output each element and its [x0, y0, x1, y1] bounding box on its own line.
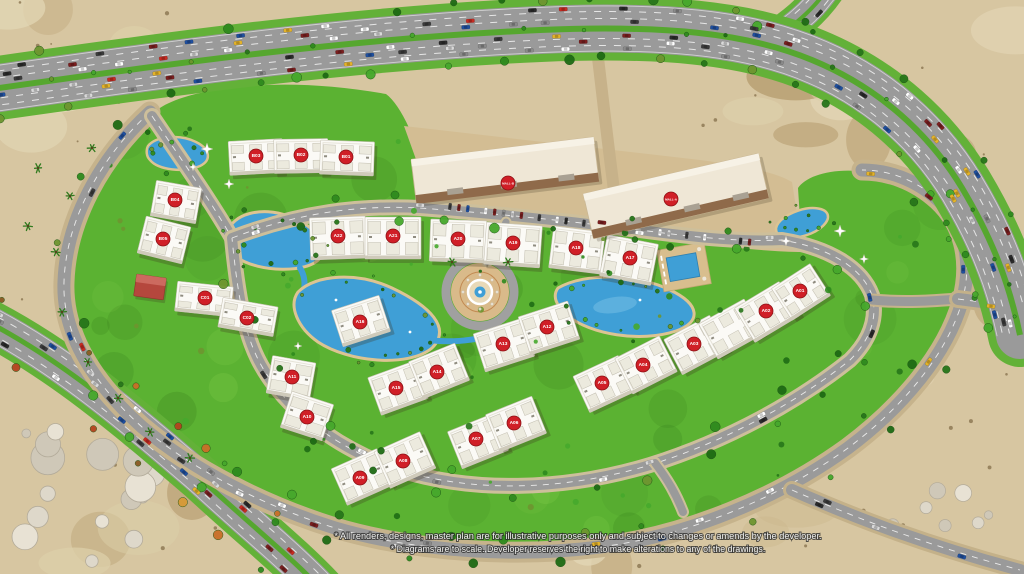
shrub — [291, 352, 295, 356]
tree — [445, 63, 451, 69]
tree — [313, 253, 318, 258]
east-connector — [872, 299, 958, 302]
building-marker-A20[interactable]: A20 — [451, 232, 465, 246]
car — [528, 8, 537, 12]
tree — [396, 352, 399, 355]
building-marker-C02[interactable]: C02 — [240, 311, 254, 325]
ground-circle — [955, 485, 972, 502]
tree — [1008, 212, 1013, 217]
tree — [943, 366, 951, 374]
tree — [569, 286, 574, 291]
tree — [833, 265, 842, 274]
tree — [984, 323, 993, 332]
shrub — [783, 357, 789, 363]
car — [478, 44, 487, 48]
shrub — [633, 323, 640, 330]
marker-label: A12 — [543, 324, 552, 330]
building-marker-A14[interactable]: A14 — [430, 365, 444, 379]
building-marker-A15[interactable]: A15 — [389, 381, 403, 395]
tree — [489, 223, 499, 233]
rock — [161, 546, 165, 550]
tree — [345, 281, 348, 284]
shrub — [182, 418, 189, 425]
tree — [346, 347, 351, 352]
tree — [277, 365, 283, 371]
shrub — [289, 277, 294, 282]
tree — [292, 72, 302, 82]
tree — [794, 228, 797, 231]
tree — [242, 265, 245, 268]
marker-label: A07 — [472, 436, 481, 442]
tree — [645, 285, 647, 287]
tree — [857, 49, 863, 55]
tree — [620, 329, 622, 331]
building-marker-B01[interactable]: B01 — [339, 150, 353, 164]
boat — [639, 299, 642, 302]
master-plan-map: B03B02B01B04B05C01C02MALL-BMALL-AA22A21A… — [0, 0, 1024, 574]
tree — [861, 302, 870, 311]
rock — [988, 465, 992, 469]
tree — [258, 80, 264, 86]
tree — [384, 354, 387, 357]
tree — [175, 423, 182, 430]
tree — [0, 297, 5, 302]
tree — [732, 244, 741, 253]
car — [598, 220, 607, 225]
tree — [258, 567, 264, 573]
building-marker-A19[interactable]: A19 — [506, 236, 520, 250]
tree — [1007, 282, 1011, 286]
car — [234, 41, 243, 46]
rock — [19, 1, 22, 4]
tree — [582, 284, 585, 287]
tree — [293, 260, 298, 265]
shrub — [322, 438, 325, 441]
car — [866, 172, 875, 176]
car — [400, 57, 409, 61]
building-marker-MALL-B[interactable]: MALL-B — [501, 176, 515, 190]
building-marker-A04[interactable]: A04 — [636, 358, 650, 372]
tree — [35, 46, 44, 55]
car — [446, 46, 455, 50]
tree — [567, 321, 570, 324]
car — [739, 238, 743, 245]
car — [579, 40, 587, 44]
tree — [245, 50, 250, 55]
car — [703, 234, 707, 241]
ground-circle — [95, 515, 108, 528]
building-marker-A09[interactable]: A09 — [353, 471, 367, 485]
tree — [370, 362, 375, 367]
ground-circle — [920, 502, 932, 514]
building-marker-A12[interactable]: A12 — [540, 320, 554, 334]
tree — [331, 270, 336, 275]
tree — [322, 536, 331, 545]
shrub — [601, 237, 605, 241]
marker-label: A22 — [334, 233, 343, 239]
tree — [795, 204, 797, 206]
tree — [749, 518, 756, 525]
tree — [595, 323, 598, 326]
shrub — [897, 368, 903, 374]
tree — [910, 198, 918, 206]
shrub — [717, 307, 723, 313]
car — [224, 48, 233, 53]
shrub — [434, 244, 438, 248]
car — [365, 53, 374, 58]
shrub — [370, 431, 374, 435]
tree — [443, 334, 446, 337]
rock — [949, 426, 953, 430]
tree — [554, 282, 558, 286]
marker-label: A19 — [509, 240, 518, 246]
tree — [370, 467, 377, 474]
building-marker-A08[interactable]: A08 — [396, 454, 410, 468]
rock — [701, 124, 704, 127]
marker-label: A15 — [392, 385, 401, 391]
building-marker-B05[interactable]: B05 — [156, 232, 170, 246]
tree — [219, 279, 229, 289]
tree — [381, 288, 384, 291]
shrub — [739, 308, 744, 313]
tree — [707, 450, 716, 459]
building-marker-A16[interactable]: A16 — [353, 315, 367, 329]
tree — [242, 243, 247, 248]
building-marker-B02[interactable]: B02 — [294, 148, 308, 162]
marker-label: A14 — [433, 369, 442, 375]
marker-label: A17 — [626, 255, 635, 261]
tree — [372, 275, 374, 277]
ground-circle — [972, 517, 984, 529]
tree — [287, 490, 296, 499]
shrub — [666, 293, 672, 299]
tree — [509, 494, 516, 501]
tree — [145, 130, 150, 135]
grass-patch — [91, 317, 109, 335]
tree — [564, 304, 568, 308]
shrub — [658, 314, 662, 318]
tree — [551, 226, 556, 231]
tree — [242, 208, 247, 213]
tree — [469, 559, 478, 568]
tree — [310, 43, 315, 48]
ground-circle — [86, 555, 99, 568]
tree — [392, 294, 395, 297]
tree — [695, 318, 700, 323]
tree — [170, 140, 174, 144]
tree — [77, 173, 84, 180]
shrub — [546, 231, 550, 235]
car — [374, 32, 383, 37]
shrub — [912, 241, 919, 248]
car — [287, 68, 296, 73]
building-marker-A21[interactable]: A21 — [386, 229, 400, 243]
shrub — [134, 324, 139, 329]
shrub — [349, 443, 356, 450]
car — [257, 71, 266, 76]
tree — [597, 52, 605, 60]
disclaimer-line-1: * All renders, designs, master plan are … — [334, 531, 821, 541]
tree — [366, 70, 375, 79]
tree — [49, 77, 54, 82]
car — [236, 33, 245, 38]
boat — [335, 299, 338, 302]
tree — [311, 236, 315, 240]
rock — [21, 298, 23, 300]
shrub — [187, 126, 192, 131]
tree — [200, 152, 203, 155]
tree — [91, 70, 96, 75]
tree — [423, 313, 428, 318]
rock — [983, 153, 985, 155]
car — [685, 232, 689, 239]
tree — [393, 8, 401, 16]
tree — [222, 229, 225, 232]
tree — [607, 270, 610, 273]
tree — [784, 216, 788, 220]
ground-circle — [47, 423, 63, 439]
building-marker-A18[interactable]: A18 — [569, 241, 583, 255]
shrub — [621, 493, 625, 497]
grass-patch — [884, 210, 920, 246]
building-marker-A07[interactable]: A07 — [469, 432, 483, 446]
car — [552, 34, 561, 38]
tree — [783, 226, 786, 229]
car — [459, 52, 468, 56]
marker-label: A18 — [572, 245, 581, 251]
building-marker-A11[interactable]: A11 — [285, 370, 299, 384]
tree — [981, 157, 987, 163]
tree — [806, 229, 809, 232]
grass-patch — [649, 389, 688, 428]
car — [622, 34, 630, 38]
tree — [701, 60, 707, 66]
building-marker-A06[interactable]: A06 — [507, 416, 521, 430]
tree — [862, 359, 868, 365]
building-marker-A05[interactable]: A05 — [595, 376, 609, 390]
marker-label: B02 — [297, 152, 306, 158]
shrub — [777, 474, 780, 477]
shrub — [489, 481, 492, 484]
tree — [684, 32, 689, 37]
marker-label: A06 — [510, 420, 519, 426]
tree — [357, 361, 360, 364]
car — [360, 27, 369, 32]
tree — [292, 222, 296, 226]
car — [961, 265, 965, 273]
tree — [323, 73, 329, 79]
tree — [167, 89, 175, 97]
fountain-jet — [478, 290, 482, 294]
tree — [282, 273, 286, 277]
tree — [327, 244, 329, 246]
marker-label: A09 — [356, 475, 365, 481]
car — [301, 33, 310, 38]
tree — [410, 33, 415, 38]
tree — [223, 24, 233, 34]
tree — [88, 391, 98, 401]
tree — [832, 221, 836, 225]
tree — [908, 360, 917, 369]
marker-label: B04 — [171, 197, 180, 203]
tree — [189, 60, 193, 64]
marker-label: A10 — [303, 414, 312, 420]
tree — [807, 214, 810, 217]
car — [623, 47, 631, 51]
car — [283, 28, 292, 33]
car — [986, 304, 995, 309]
marker-label: B01 — [342, 154, 351, 160]
tree — [565, 55, 575, 65]
tree — [632, 237, 638, 243]
shrub — [528, 504, 534, 510]
car — [630, 20, 638, 24]
building-marker-A03[interactable]: A03 — [687, 337, 701, 351]
tree — [12, 363, 20, 371]
shrub — [121, 227, 125, 231]
tree — [594, 485, 600, 491]
tree — [419, 347, 423, 351]
tree — [792, 81, 799, 88]
tree — [778, 386, 787, 395]
car — [619, 7, 627, 11]
master-plan-screenshot: B03B02B01B04B05C01C02MALL-BMALL-AA22A21A… — [0, 0, 1024, 574]
tree — [300, 293, 303, 296]
tree — [378, 447, 385, 454]
car — [748, 239, 752, 246]
marker-label: B05 — [159, 236, 168, 242]
tree — [946, 237, 951, 242]
tree — [900, 75, 908, 83]
marker-label: A08 — [399, 458, 408, 464]
car — [701, 44, 710, 49]
tree — [310, 438, 316, 444]
shrub — [778, 442, 784, 448]
building-marker-B03[interactable]: B03 — [249, 149, 263, 163]
car — [541, 21, 550, 25]
shrub — [410, 263, 413, 266]
building-marker-A17[interactable]: A17 — [623, 251, 637, 265]
car — [466, 19, 475, 23]
grass-patch — [209, 373, 238, 402]
marker-label: A13 — [499, 341, 508, 347]
ground-circle — [984, 511, 992, 519]
tree — [710, 422, 720, 432]
shrub — [565, 443, 570, 448]
tree — [748, 65, 757, 74]
tree — [817, 226, 821, 230]
car — [669, 36, 678, 40]
building-marker-C01[interactable]: C01 — [198, 291, 212, 305]
shrub — [198, 348, 204, 354]
building-marker-B04[interactable]: B04 — [168, 193, 182, 207]
tree — [450, 0, 457, 6]
car — [559, 7, 568, 11]
ground-circle — [87, 438, 119, 470]
rock — [921, 66, 924, 69]
tree — [222, 461, 227, 466]
shrub — [117, 218, 122, 223]
shrub — [825, 287, 832, 294]
marker-label: C02 — [243, 315, 252, 321]
car — [658, 229, 662, 236]
car — [525, 48, 534, 52]
tree — [431, 323, 434, 326]
car — [321, 24, 330, 29]
shrub — [285, 283, 291, 289]
car — [335, 50, 344, 55]
grass-patch — [92, 281, 124, 313]
tree — [408, 351, 411, 354]
building-marker-A13[interactable]: A13 — [496, 337, 510, 351]
tree — [202, 444, 211, 453]
tree — [135, 460, 141, 466]
tree — [655, 289, 659, 293]
tree — [391, 191, 399, 199]
tree — [79, 318, 89, 328]
tree — [618, 280, 623, 285]
tree — [582, 28, 586, 32]
building-marker-A22[interactable]: A22 — [331, 229, 345, 243]
shrub — [411, 208, 417, 214]
car — [422, 22, 431, 26]
shrub — [478, 307, 484, 313]
building-marker-A01[interactable]: A01 — [793, 284, 807, 298]
building-marker-MALL-A[interactable]: MALL-A — [664, 192, 678, 206]
tree — [861, 413, 866, 418]
rock — [754, 94, 756, 96]
shrub — [394, 513, 400, 519]
tree — [230, 216, 233, 219]
building-marker-A02[interactable]: A02 — [759, 304, 773, 318]
tree — [178, 498, 187, 507]
tree — [332, 195, 339, 202]
tree — [303, 228, 307, 232]
shrub — [470, 375, 474, 379]
shrub — [898, 235, 902, 239]
tree — [164, 171, 169, 176]
sand-patch — [723, 97, 784, 125]
tree — [775, 421, 781, 427]
ground-circle — [939, 519, 951, 531]
tree — [158, 143, 163, 148]
tree — [630, 216, 635, 221]
car — [398, 50, 407, 54]
marker-label: A05 — [598, 380, 607, 386]
building-marker-A10[interactable]: A10 — [300, 410, 314, 424]
tree — [334, 220, 339, 225]
shrub — [646, 503, 651, 508]
grass-patch — [886, 261, 909, 284]
tree — [667, 243, 674, 250]
tree — [993, 257, 997, 261]
tree — [1013, 315, 1016, 318]
marker-label: A02 — [762, 308, 771, 314]
tree — [395, 217, 404, 226]
car — [494, 37, 503, 41]
tree — [151, 151, 155, 155]
tree — [232, 467, 241, 476]
rock — [637, 564, 641, 568]
tree — [64, 103, 72, 111]
shrub — [502, 279, 507, 284]
tree — [202, 87, 207, 92]
tree — [885, 97, 889, 101]
car — [561, 47, 570, 51]
marker-label: A03 — [690, 341, 699, 347]
car — [666, 41, 675, 45]
tree — [192, 146, 196, 150]
